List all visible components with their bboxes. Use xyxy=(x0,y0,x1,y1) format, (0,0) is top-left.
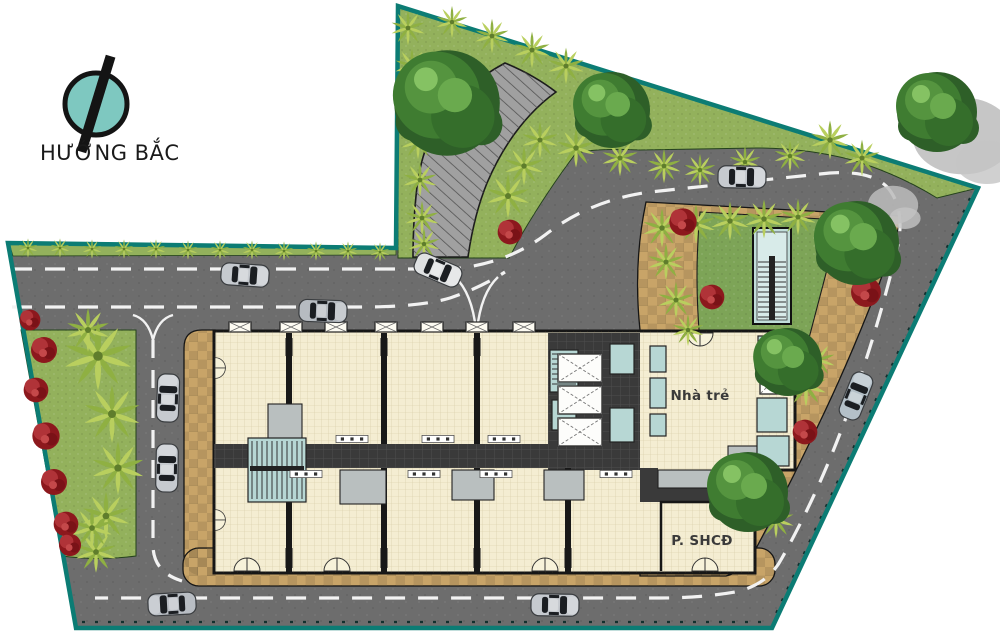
car-icon xyxy=(718,166,766,189)
shrub-icon xyxy=(793,420,818,445)
shrub-icon xyxy=(20,310,41,331)
shrub-icon xyxy=(700,285,725,310)
shrub-icon xyxy=(498,220,523,245)
site-plan-drawing: Nhà trẻ P. SHCĐ HƯỚNG BẮC xyxy=(0,0,1000,635)
outdoor-stair xyxy=(753,228,791,324)
shrub-icon xyxy=(54,512,79,537)
kindergarten-label: Nhà trẻ xyxy=(670,388,729,404)
car-icon xyxy=(147,592,196,616)
car-icon xyxy=(156,374,180,423)
building-floorplan: Nhà trẻ P. SHCĐ xyxy=(214,322,795,573)
car-icon xyxy=(156,444,179,492)
site-plan-page: Nhà trẻ P. SHCĐ HƯỚNG BẮC xyxy=(0,0,1000,635)
shrub-icon xyxy=(41,469,67,495)
shrub-icon xyxy=(59,534,81,556)
car-icon xyxy=(299,299,348,323)
shrub-icon xyxy=(32,422,59,449)
shrub-icon xyxy=(24,378,49,403)
car-icon xyxy=(220,262,269,287)
community-room-label: P. SHCĐ xyxy=(671,533,733,549)
north-indicator: HƯỚNG BẮC xyxy=(40,55,180,165)
tree-icon xyxy=(896,72,979,152)
shrub-icon xyxy=(31,337,57,363)
north-label: HƯỚNG BẮC xyxy=(40,137,180,165)
car-icon xyxy=(531,594,579,617)
shrub-icon xyxy=(669,208,696,235)
